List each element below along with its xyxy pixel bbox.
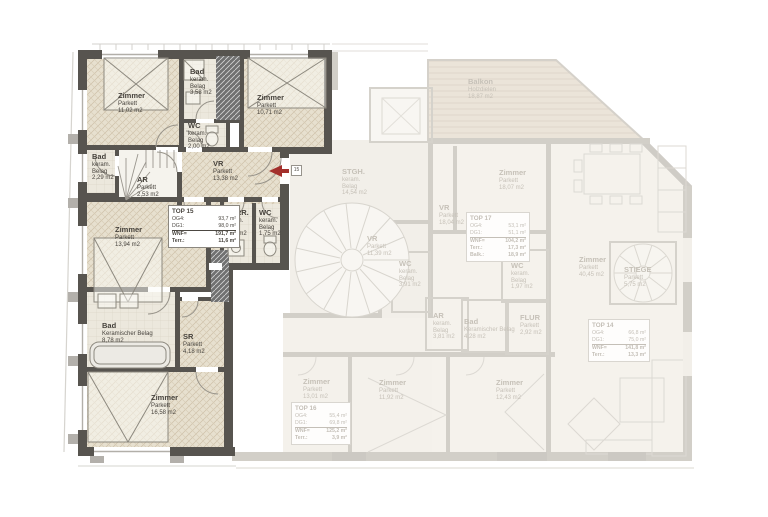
room-label-zimmer-1394: Zimmer Parkett 13,94 m2 [115,226,161,248]
room-label-bad-358: Bad keram. Belag 3,58 m2 [190,68,217,97]
room-label-wc-200: WC keram. Belag 2,00 m2 [188,122,215,151]
room-label-sr-418: SR Parkett 4,18 m2 [183,333,229,355]
room-label-zimmer-1301: Zimmer Parkett 13,01 m2 [303,378,349,400]
room-label-wc-197: WC keram. Belag 1,97 m2 [511,262,538,291]
info-box-top17: TOP 17 OG4:53,1 m² DG1:51,1 m² WNF=104,2… [466,212,530,262]
room-label-zimmer-1658: Zimmer Parkett 16,58 m2 [151,394,197,416]
room-label-vr-1338: VR Parkett 13,38 m2 [213,160,259,182]
room-label-balkon: Balkon Holzdielen 18,87 m2 [468,78,514,100]
room-label-zimmer-1192: Zimmer Parkett 11,92 m2 [379,379,425,401]
room-label-wc-391: WC keram. Belag 3,91 m2 [399,260,426,289]
room-label-stiege: STIEGE Parkett 5,75 m2 [624,266,670,288]
room-label-zimmer-4045: Zimmer Parkett 40,45 m2 [579,256,625,278]
apartment-top14-region[interactable] [551,142,683,452]
room-label-ar-253: AR Parkett 2,53 m2 [137,176,183,198]
room-label-vr-1139: VR Parkett 11,39 m2 [367,235,413,257]
room-label-zimmer-1102: Zimmer Parkett 11,02 m2 [118,92,164,114]
room-label-ar-381: AR keram. Belag 3,81 m2 [433,312,460,341]
info-box-top14: TOP 14 OG4:66,8 m² DG1:75,0 m² WNF=141,8… [588,319,650,362]
info-box-top16: TOP 16 OG4:55,4 m² DG1:69,8 m² WNF=125,2… [291,402,351,445]
room-label-bad-229: Bad keram. Belag 2,29 m2 [92,153,119,182]
room-label-zimmer-1243: Zimmer Parkett 12,43 m2 [496,379,542,401]
room-label-zimmer-1807: Zimmer Parkett 18,07 m2 [499,169,545,191]
entrance-arrow-tail [281,169,289,173]
floorplan-page: Zimmer Parkett 11,02 m2 Bad keram. Belag… [0,0,768,517]
room-label-wc-175: WC keram. Belag 1,75 m2 [259,209,286,238]
room-label-zimmer-1071: Zimmer Parkett 10,71 m2 [257,94,303,116]
info-box-top15: TOP 15 OG4:93,7 m² DG1:98,0 m² WNF=191,7… [168,205,240,248]
room-label-flur-292: FLUR Parkett 2,92 m2 [520,314,566,336]
room-label-stgh: STGH. keram. Belag 14,54 m2 [342,168,369,197]
room-label-bad-878: Bad Keramischer Belag 8,78 m2 [102,322,170,344]
entrance-number: 15 [291,165,302,176]
